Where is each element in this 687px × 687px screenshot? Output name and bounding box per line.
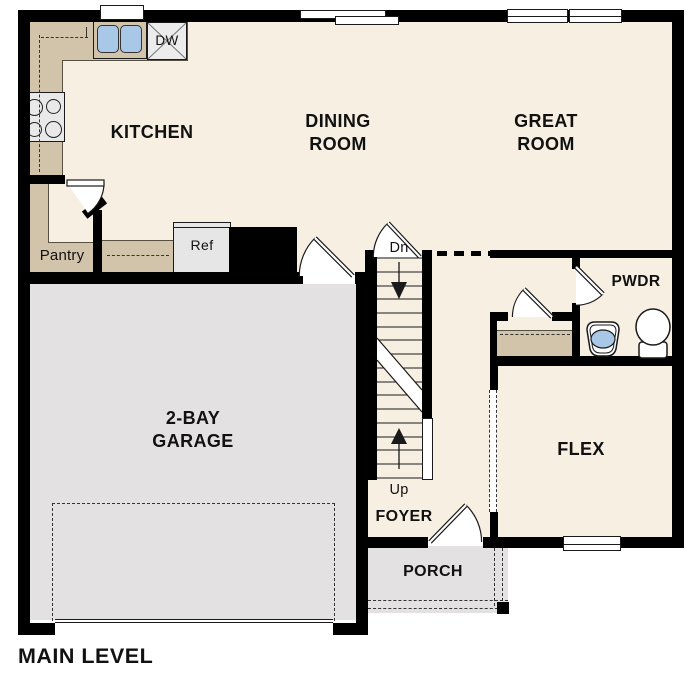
great-room-window xyxy=(507,9,568,23)
room-label-garage: 2-BAY GARAGE xyxy=(128,407,258,453)
cabinet-tick xyxy=(86,27,87,37)
porch-edge-dash xyxy=(368,608,508,609)
dishwasher-box: DW xyxy=(147,22,187,60)
wall-right-exterior xyxy=(672,10,684,548)
wall-pwdr-left xyxy=(572,303,580,356)
stairs-up-label: Up xyxy=(381,481,417,500)
room-label-flex: FLEX xyxy=(536,438,626,461)
pantry-door-swing xyxy=(58,168,110,220)
refrigerator-label: Ref xyxy=(174,237,230,255)
wall-foyer-front xyxy=(356,537,428,548)
plan-title: MAIN LEVEL xyxy=(18,643,238,671)
stairs-up-arrow-icon xyxy=(391,428,407,444)
burner-icon xyxy=(45,121,62,138)
room-label-dining: DINING ROOM xyxy=(290,110,386,156)
wall-left-exterior xyxy=(18,10,30,635)
flex-opening-dash xyxy=(496,390,497,512)
dishwasher-label: DW xyxy=(148,32,186,49)
porch-post xyxy=(497,602,509,614)
refrigerator-top-line xyxy=(174,227,230,228)
refrigerator-box: Ref xyxy=(173,222,231,274)
porch-edge-dash xyxy=(502,548,503,606)
counter-dash xyxy=(107,255,169,256)
kitchen-mid-counter xyxy=(102,240,173,273)
garage-door-line xyxy=(55,619,333,623)
kitchen-window xyxy=(100,5,144,20)
room-label-porch: PORCH xyxy=(392,562,474,582)
kitchen-sink xyxy=(93,21,147,59)
stairs-down-label: Dn xyxy=(381,239,417,258)
burner-icon xyxy=(46,99,61,114)
room-label-kitchen: KITCHEN xyxy=(82,121,222,144)
closet-rod-dash xyxy=(500,334,570,335)
upper-cabinet-dash xyxy=(39,35,40,172)
stairs-down-arrow-icon xyxy=(391,282,407,299)
floor-plan: DW Ref xyxy=(0,0,687,687)
garage-parking-outline xyxy=(52,503,335,621)
room-label-pwdr: PWDR xyxy=(602,272,670,292)
flex-window xyxy=(563,536,621,551)
room-label-pantry: Pantry xyxy=(30,246,94,265)
sink-basin-right xyxy=(120,25,142,53)
closet-door-swing xyxy=(498,276,558,324)
wall-garage-bottom-right xyxy=(333,623,368,635)
wall-garage-bottom-left xyxy=(18,623,55,635)
stair-railing xyxy=(422,418,433,480)
porch-edge-dash xyxy=(368,600,508,601)
porch-edge-dash xyxy=(494,548,495,606)
great-room-window xyxy=(569,9,622,23)
toilet-icon xyxy=(632,304,674,360)
dining-slider-pane xyxy=(335,16,399,25)
chase-block xyxy=(229,227,297,272)
cased-opening-dash xyxy=(437,251,490,256)
wall-hall-top xyxy=(490,250,684,258)
upper-cabinet-dash xyxy=(41,37,88,38)
wall-garage-top xyxy=(18,272,303,284)
room-label-foyer: FOYER xyxy=(366,507,442,527)
pedestal-sink-icon xyxy=(583,318,623,360)
garage-entry-door-swing xyxy=(296,228,358,286)
room-label-great: GREAT ROOM xyxy=(490,110,602,156)
wall-flex-left-stub-bottom xyxy=(490,512,498,537)
sink-basin-left xyxy=(97,25,119,53)
wall-flex-left-stub-top xyxy=(490,366,498,390)
